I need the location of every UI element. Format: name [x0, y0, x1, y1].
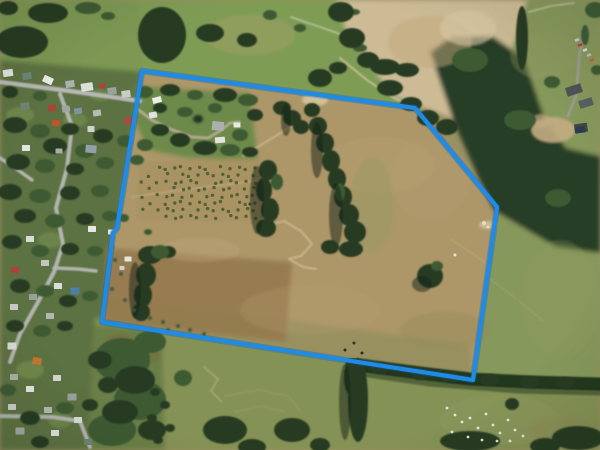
aerial-map-view: [0, 0, 600, 450]
aerial-photo: [0, 0, 600, 450]
vignette-overlay: [0, 0, 600, 450]
